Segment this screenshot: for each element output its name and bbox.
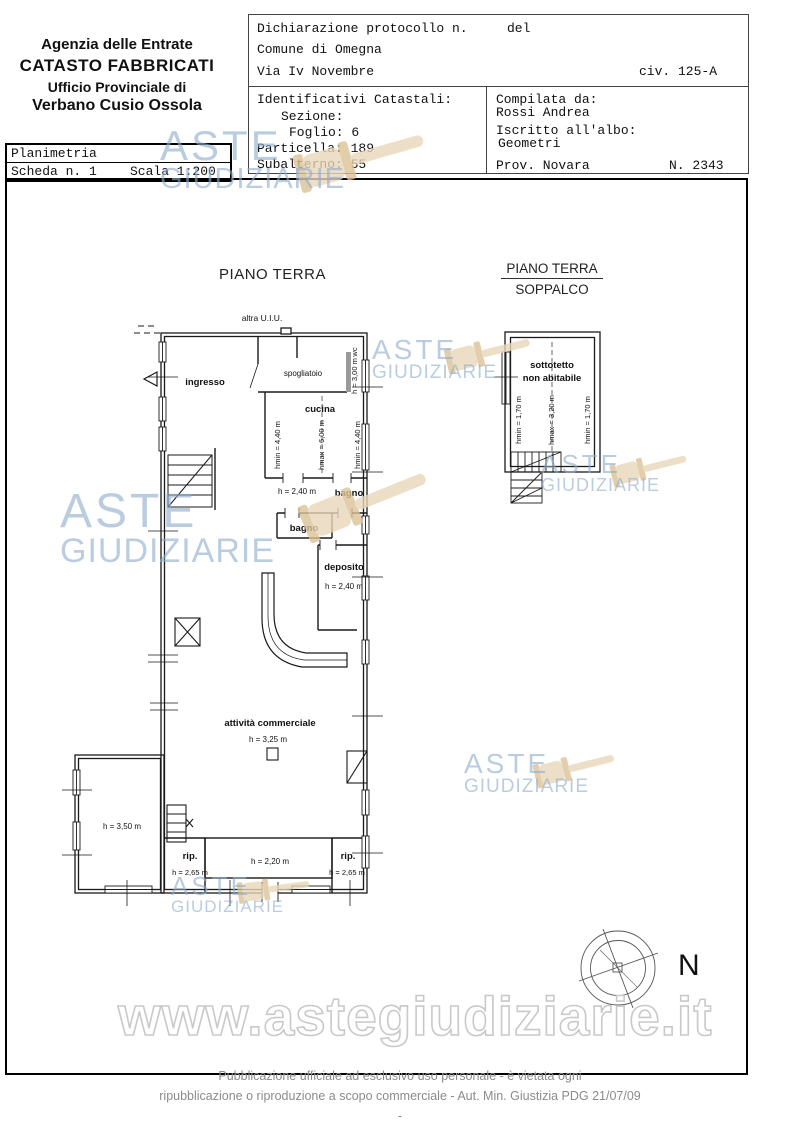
footer-line1: Pubblicazione ufficiale ad esclusivo uso… [0, 1069, 800, 1083]
gavel-icon [443, 329, 532, 375]
central-room-height: h = 2,20 m [251, 857, 289, 866]
boundary-dashes [134, 326, 160, 333]
room-ingresso: ingresso [185, 377, 225, 388]
soppalco-stairs [511, 452, 561, 503]
cadastral-plan-page: Agenzia delle Entrate CATASTO FABBRICATI… [0, 0, 800, 1131]
room-attivita-commerciale: attività commerciale [224, 718, 315, 729]
window-symbols [73, 342, 510, 893]
cucina-hmin-right: hmin = 4,40 m [353, 421, 362, 469]
cucina-hmin-left: hmin = 4,40 m [273, 421, 282, 469]
room-wc: wc [350, 347, 359, 357]
soppalco-hmin-left: hmin = 1,70 m [514, 396, 523, 444]
compass-north-label: N [678, 949, 700, 982]
footer-line2: ripubblicazione o riproduzione a scopo c… [0, 1089, 800, 1103]
watermark-url: www.astegiudiziarie.it [118, 984, 718, 1048]
soppalco-hmin-right: hmin = 1,70 m [583, 396, 592, 444]
attivita-height: h = 3,25 m [249, 735, 287, 744]
entrance-arrow-icon [144, 372, 157, 386]
staircase [168, 455, 212, 507]
rip-left-height: h = 2,65 m [172, 868, 208, 877]
room-spogliatoio: spogliatoio [284, 369, 323, 378]
door-height-label: h = 2,40 m [278, 487, 316, 496]
room-cucina: cucina [305, 404, 336, 415]
other-unit-label: altra U.I.U. [242, 313, 283, 323]
room-rip-right: rip. [341, 851, 356, 862]
rip-right-height: h = 2,65 m [329, 868, 365, 877]
shaft-boxes [167, 618, 367, 842]
gavel-icon [532, 746, 616, 789]
floorplan-drawing: N altra U.I.U. ingresso spogliatoio wc h… [0, 0, 800, 1131]
cucina-hmax: hmax = 6,00 m [317, 420, 326, 470]
room-deposito: deposito [324, 562, 364, 573]
footer-line3: - [0, 1109, 800, 1123]
sottotetto-label-line1: sottotetto [530, 360, 574, 371]
sottotetto-label-line2: non abitabile [523, 373, 582, 384]
wc-height: h = 3,00 m [350, 358, 359, 394]
room-rip-left: rip. [183, 851, 198, 862]
deposito-height: h = 2,40 m [325, 582, 363, 591]
gavel-icon [609, 447, 689, 488]
gavel-icon [292, 120, 428, 194]
soppalco-hmax: hmax = 3,20 m [547, 395, 556, 445]
annex-height: h = 3,50 m [103, 822, 141, 831]
